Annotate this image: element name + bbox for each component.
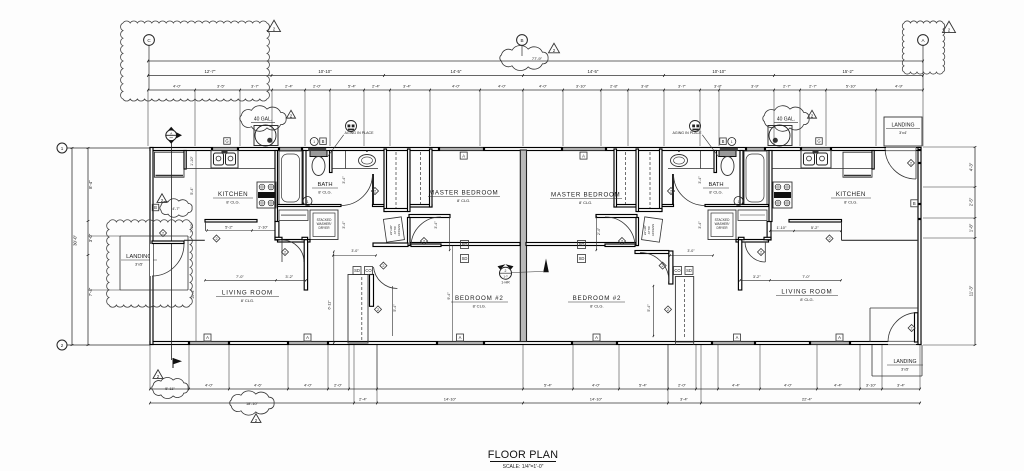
svg-text:2: 2 (911, 327, 913, 331)
svg-text:■: ■ (366, 149, 368, 153)
svg-text:2: 2 (760, 251, 762, 255)
svg-text:ACCESS: ACCESS (651, 224, 655, 236)
svg-text:DRYER: DRYER (318, 226, 330, 230)
svg-text:1: 1 (61, 146, 64, 151)
svg-text:7'-0": 7'-0" (236, 274, 244, 279)
svg-text:3'-4": 3'-4" (342, 176, 346, 184)
svg-text:SD: SD (462, 242, 468, 247)
svg-text:2: 2 (61, 343, 64, 348)
svg-text:SD: SD (579, 242, 585, 247)
svg-text:8' CLG.: 8' CLG. (590, 303, 603, 308)
svg-text:SD: SD (686, 268, 692, 273)
svg-text:G: G (225, 139, 228, 144)
svg-text:5'-4": 5'-4" (544, 383, 553, 388)
svg-text:2'-7": 2'-7" (783, 84, 792, 89)
svg-text:3'x5': 3'x5' (135, 262, 143, 267)
svg-text:3'-10": 3'-10" (576, 84, 587, 89)
svg-text:3'-5": 3'-5" (217, 84, 226, 89)
svg-text:2: 2 (662, 264, 664, 268)
svg-text:18'-10": 18'-10" (246, 401, 259, 406)
svg-text:KITCHEN: KITCHEN (836, 191, 866, 198)
svg-text:BATH: BATH (708, 182, 723, 188)
svg-text:10'-10": 10'-10" (712, 69, 726, 74)
svg-text:LIVING ROOM: LIVING ROOM (781, 289, 832, 296)
svg-text:2: 2 (670, 190, 672, 194)
svg-text:8' CLG.: 8' CLG. (709, 190, 722, 195)
svg-text:3'-0": 3'-0" (687, 249, 695, 253)
svg-text:3'-4": 3'-4" (342, 221, 346, 229)
svg-text:A: A (306, 335, 309, 340)
svg-text:2: 2 (667, 308, 669, 312)
svg-text:2'-0": 2'-0" (313, 84, 322, 89)
svg-text:A: A (595, 335, 598, 340)
svg-text:4'-0": 4'-0" (498, 84, 507, 89)
svg-text:5'-11": 5'-11" (165, 386, 175, 391)
svg-text:4'-0": 4'-0" (452, 84, 461, 89)
svg-text:5'-2": 5'-2" (225, 225, 233, 230)
svg-text:4'-4": 4'-4" (732, 383, 741, 388)
svg-text:3'-9": 3'-9" (751, 84, 760, 89)
svg-text:5'-2": 5'-2" (811, 225, 819, 230)
svg-text:A: A (170, 132, 172, 136)
svg-text:3'-2": 3'-2" (285, 274, 293, 279)
svg-text:2'-0": 2'-0" (678, 383, 687, 388)
svg-text:2'-4": 2'-4" (285, 84, 294, 89)
svg-text:2: 2 (377, 308, 379, 312)
svg-text:40 GAL.: 40 GAL. (777, 117, 795, 123)
svg-text:2'-4": 2'-4" (372, 84, 381, 89)
svg-text:2'-8": 2'-8" (610, 84, 619, 89)
svg-text:9'-4": 9'-4" (447, 292, 451, 300)
svg-text:1'-8": 1'-8" (969, 223, 974, 232)
svg-text:2: 2 (621, 240, 623, 244)
svg-text:B: B (520, 38, 523, 43)
svg-text:A: A (838, 335, 841, 340)
svg-text:5'-4": 5'-4" (190, 187, 194, 195)
svg-text:A: A (462, 153, 465, 158)
svg-text:B: B (913, 201, 916, 206)
svg-text:MASTER BEDROOM: MASTER BEDROOM (551, 192, 620, 199)
svg-text:1: 1 (731, 140, 733, 144)
svg-text:3'-2": 3'-2" (753, 274, 761, 279)
svg-text:SD: SD (354, 268, 360, 273)
svg-text:3'-4": 3'-4" (434, 221, 438, 229)
svg-text:14'-5": 14'-5" (588, 69, 599, 74)
svg-text:10'-4": 10'-4" (191, 289, 195, 299)
svg-text:8' CLG.: 8' CLG. (241, 298, 254, 303)
svg-text:A: A (582, 153, 585, 158)
svg-text:8' CLG.: 8' CLG. (473, 303, 486, 308)
svg-text:14'-5": 14'-5" (451, 69, 462, 74)
svg-text:DRYER: DRYER (716, 226, 728, 230)
svg-text:8' CLG.: 8' CLG. (457, 198, 470, 203)
svg-text:ACCESS: ACCESS (397, 224, 401, 236)
svg-text:1: 1 (313, 140, 315, 144)
svg-text:A: A (736, 335, 739, 340)
svg-text:2: 2 (828, 237, 830, 241)
svg-text:4'-7": 4'-7" (172, 207, 180, 211)
svg-text:2: 2 (382, 264, 384, 268)
svg-text:AGING IN PLACE: AGING IN PLACE (345, 131, 375, 135)
svg-text:8' CLG.: 8' CLG. (844, 200, 857, 205)
svg-text:LANDING: LANDING (893, 359, 916, 365)
svg-text:3'-4": 3'-4" (698, 176, 702, 184)
svg-text:AGING IN PLACE: AGING IN PLACE (673, 131, 703, 135)
svg-text:2'-4": 2'-4" (359, 397, 368, 402)
svg-text:77'-9": 77'-9" (532, 56, 543, 61)
svg-text:1: 1 (307, 200, 309, 204)
svg-text:FLOOR PLAN: FLOOR PLAN (488, 449, 558, 461)
svg-text:4'-0": 4'-0" (304, 383, 313, 388)
svg-text:5'-10": 5'-10" (846, 84, 857, 89)
svg-text:2'-4": 2'-4" (597, 227, 601, 235)
svg-text:A: A (459, 335, 462, 340)
svg-text:2'-5": 2'-5" (969, 197, 974, 206)
svg-text:15'-2": 15'-2" (843, 69, 854, 74)
svg-text:SD: SD (579, 256, 585, 261)
svg-text:BATH: BATH (317, 182, 332, 188)
svg-text:22'-4": 22'-4" (802, 397, 813, 402)
svg-text:CO: CO (674, 268, 681, 273)
svg-text:8' CLG.: 8' CLG. (579, 200, 592, 205)
svg-text:BEDROOM #2: BEDROOM #2 (573, 295, 622, 302)
svg-text:4'-3": 4'-3" (969, 162, 974, 171)
svg-text:40 GAL.: 40 GAL. (254, 117, 272, 123)
svg-text:30'-0": 30'-0" (73, 234, 78, 245)
svg-text:4'-0": 4'-0" (592, 383, 601, 388)
svg-text:SD: SD (462, 256, 468, 261)
svg-text:CO: CO (365, 268, 372, 273)
svg-text:2: 2 (284, 251, 286, 255)
svg-text:14'-10": 14'-10" (444, 397, 457, 402)
svg-text:4'-0": 4'-0" (784, 383, 793, 388)
svg-text:6'-11": 6'-11" (328, 300, 332, 310)
svg-text:4'-0": 4'-0" (173, 84, 182, 89)
svg-text:3'-4": 3'-4" (698, 221, 702, 229)
svg-text:2: 2 (215, 237, 217, 241)
svg-text:2: 2 (505, 269, 507, 273)
svg-text:1: 1 (738, 200, 740, 204)
svg-text:5'-4": 5'-4" (348, 84, 357, 89)
svg-text:3'-4": 3'-4" (403, 84, 412, 89)
svg-text:3'-10": 3'-10" (866, 383, 877, 388)
svg-text:1-HR: 1-HR (501, 281, 510, 285)
svg-text:LANDING: LANDING (891, 123, 914, 129)
svg-text:4'-4": 4'-4" (834, 383, 843, 388)
svg-text:1'-10": 1'-10" (258, 225, 269, 230)
svg-text:11'-3": 11'-3" (969, 285, 974, 296)
svg-text:G: G (817, 139, 820, 144)
svg-text:2'-0": 2'-0" (334, 383, 343, 388)
svg-text:8'-4": 8'-4" (88, 180, 93, 189)
svg-text:MASTER BEDROOM: MASTER BEDROOM (429, 190, 498, 197)
svg-text:2: 2 (423, 240, 425, 244)
svg-text:2: 2 (374, 190, 376, 194)
svg-text:3'x5': 3'x5' (901, 367, 909, 372)
svg-text:3'-4": 3'-4" (680, 397, 689, 402)
svg-text:3'x4': 3'x4' (899, 130, 907, 135)
svg-text:4'-0": 4'-0" (539, 84, 548, 89)
svg-text:3'-7": 3'-7" (678, 84, 687, 89)
svg-text:1'-10": 1'-10" (776, 225, 787, 230)
svg-text:12'-7": 12'-7" (205, 69, 216, 74)
svg-text:7'-4": 7'-4" (88, 287, 93, 296)
svg-text:3'-0": 3'-0" (351, 249, 359, 253)
svg-text:BEDROOM #2: BEDROOM #2 (455, 295, 504, 302)
svg-text:B: B (322, 139, 325, 144)
svg-text:SCALE: 1/4"=1'-0": SCALE: 1/4"=1'-0" (503, 464, 544, 470)
svg-text:■: ■ (678, 149, 680, 153)
svg-text:2: 2 (162, 232, 164, 236)
svg-text:4'-9": 4'-9" (895, 84, 904, 89)
svg-text:7'-0": 7'-0" (802, 274, 810, 279)
svg-text:5'-4": 5'-4" (393, 304, 397, 312)
svg-text:3'-7": 3'-7" (251, 84, 260, 89)
svg-text:2'-7": 2'-7" (809, 84, 818, 89)
svg-text:3'-8": 3'-8" (641, 84, 650, 89)
svg-text:5'-4": 5'-4" (647, 304, 651, 312)
svg-text:2: 2 (910, 162, 912, 166)
svg-text:8' CLG.: 8' CLG. (800, 297, 813, 302)
svg-text:3'-4": 3'-4" (897, 383, 906, 388)
svg-text:B: B (154, 205, 157, 210)
svg-text:14'-10": 14'-10" (590, 397, 603, 402)
svg-text:LANDING: LANDING (126, 254, 152, 260)
svg-text:10'-10": 10'-10" (318, 69, 332, 74)
svg-text:KITCHEN: KITCHEN (218, 191, 248, 198)
svg-text:B: B (722, 139, 725, 144)
svg-text:5'-4": 5'-4" (639, 383, 648, 388)
svg-text:1-?: 1-? (503, 275, 508, 279)
svg-text:3'-0": 3'-0" (88, 233, 93, 242)
svg-text:8' CLG.: 8' CLG. (318, 190, 331, 195)
svg-text:4'-0": 4'-0" (205, 383, 214, 388)
svg-text:LIVING ROOM: LIVING ROOM (222, 290, 273, 297)
svg-text:8' CLG.: 8' CLG. (226, 200, 239, 205)
svg-text:1'-10": 1'-10" (190, 156, 194, 166)
svg-text:4'-6": 4'-6" (254, 383, 263, 388)
svg-text:A: A (206, 335, 209, 340)
svg-text:3'-8": 3'-8" (714, 84, 723, 89)
